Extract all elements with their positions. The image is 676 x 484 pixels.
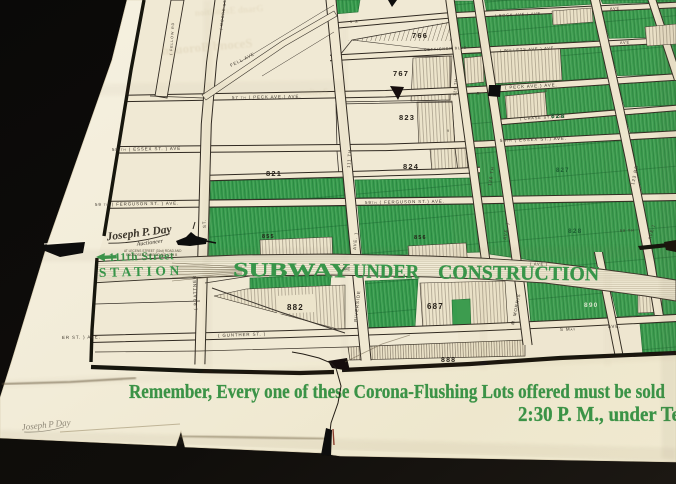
- svg-text:2:30 P. M., under Te: 2:30 P. M., under Te: [518, 402, 676, 426]
- svg-text:STATION: STATION: [99, 263, 183, 280]
- svg-text:827: 827: [556, 168, 570, 174]
- svg-text:8: 8: [545, 89, 548, 93]
- svg-text:ER ST. ) AVE.: ER ST. ) AVE.: [62, 334, 101, 340]
- svg-text:828: 828: [551, 113, 565, 120]
- svg-text:9: 9: [447, 129, 450, 133]
- svg-text:828: 828: [568, 228, 582, 235]
- svg-text:823: 823: [399, 113, 415, 122]
- svg-text:AVE: AVE: [610, 6, 620, 11]
- svg-text:UNDER: UNDER: [353, 260, 420, 283]
- svg-text:766: 766: [412, 31, 428, 40]
- svg-text:SUBWAY: SUBWAY: [233, 259, 351, 282]
- svg-text:1 S: 1 S: [350, 20, 359, 24]
- svg-text:890: 890: [584, 302, 598, 309]
- svg-text:687: 687: [427, 302, 444, 311]
- svg-text:AVE: AVE: [620, 40, 630, 45]
- svg-text:882: 882: [287, 303, 304, 312]
- svg-text:821: 821: [266, 169, 282, 178]
- svg-text:CONSTRUCTION: CONSTRUCTION: [438, 262, 600, 286]
- svg-text:S MAY: S MAY: [560, 326, 576, 332]
- svg-text:767: 767: [393, 69, 409, 78]
- svg-text:M: M: [476, 91, 481, 95]
- svg-text:856: 856: [414, 235, 427, 241]
- svg-text:Remember, Every one of these C: Remember, Every one of these Corona-Flus…: [129, 381, 665, 403]
- svg-text:824: 824: [403, 162, 419, 171]
- svg-text:855: 855: [262, 234, 275, 240]
- svg-text:59 TH: 59 TH: [620, 228, 635, 233]
